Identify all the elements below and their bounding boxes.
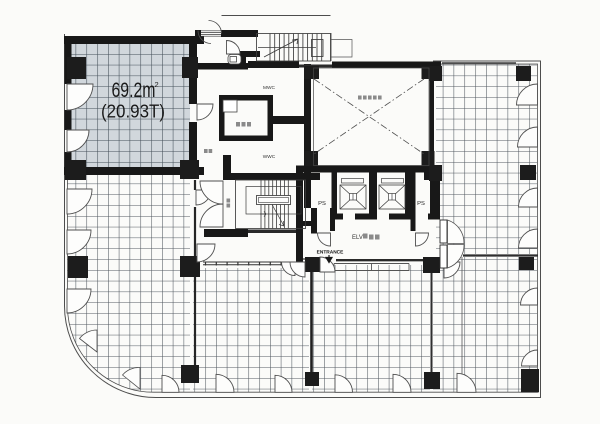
svg-text:PS: PS — [417, 201, 425, 207]
svg-text:2: 2 — [155, 80, 159, 89]
svg-text:(20.93T): (20.93T) — [101, 102, 165, 122]
svg-text:69.2m: 69.2m — [112, 79, 156, 102]
svg-text:WWC: WWC — [263, 154, 276, 160]
svg-text:PS: PS — [318, 201, 326, 207]
svg-text:ENTRANCE: ENTRANCE — [317, 250, 344, 256]
svg-text:ELV: ELV — [352, 235, 363, 241]
svg-text:MWC: MWC — [263, 85, 276, 91]
